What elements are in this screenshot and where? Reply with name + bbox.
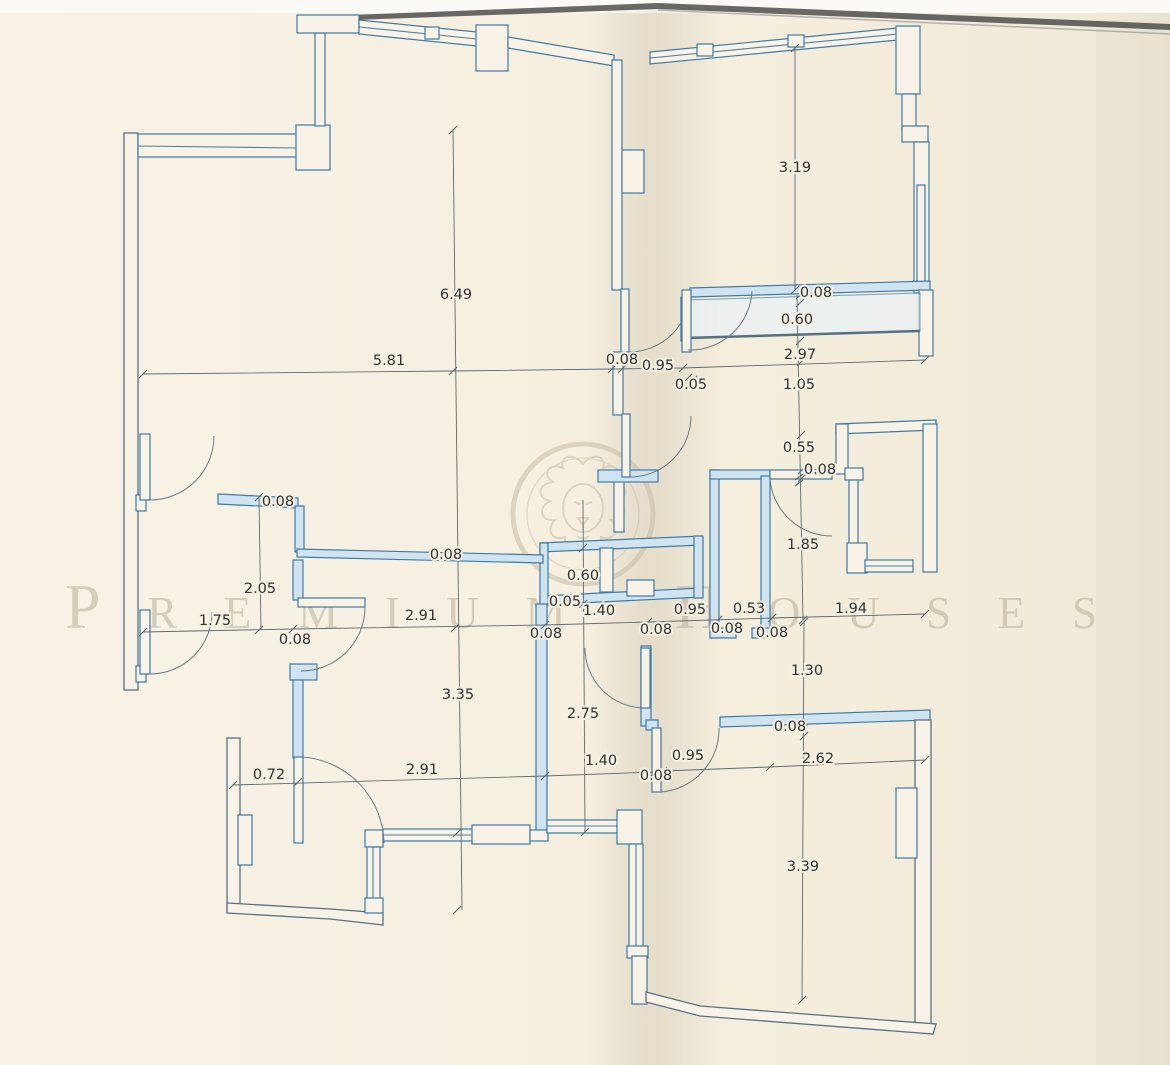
dimension-label: 0.95 (674, 602, 706, 618)
dimension-label: 3.35 (442, 687, 474, 703)
wall (847, 543, 867, 573)
dimension-label: 6.49 (440, 287, 472, 303)
wall (919, 290, 933, 356)
wall (124, 133, 138, 690)
floorplan-canvas: Premium Houses (0, 0, 1170, 1065)
window-band (138, 134, 298, 157)
scanned-floorplan-page: Premium Houses (0, 0, 1170, 1065)
wall (836, 424, 848, 474)
dimension-label: 0.08 (774, 719, 806, 735)
wall (617, 810, 642, 844)
dimension-label: 1.40 (585, 753, 617, 769)
dimension-label: 0.05 (549, 594, 581, 610)
dimension-label: 1.30 (791, 663, 823, 679)
wall (293, 560, 303, 600)
dimension-label: 0.72 (253, 767, 285, 783)
wall (622, 150, 644, 193)
dimension-label: 0.60 (567, 568, 599, 584)
wall (293, 680, 303, 758)
dimension-label: 0.53 (733, 601, 765, 617)
dimension-label: 0.08 (430, 547, 462, 563)
dimension-label: 2.91 (405, 608, 437, 624)
dimension-label: 0.08 (530, 626, 562, 642)
dimension-label: 0.95 (672, 748, 704, 764)
dimension-label: 3.19 (779, 160, 811, 176)
dimension-label: 2.62 (802, 751, 834, 767)
wall (365, 898, 383, 913)
dimension-label: 0.95 (642, 358, 674, 374)
dimension-label: 0.08 (804, 462, 836, 478)
wall (902, 94, 916, 130)
wall (632, 956, 647, 1004)
wall (915, 720, 931, 1026)
closet-divider (600, 548, 613, 592)
wall (923, 424, 937, 572)
wall (238, 815, 252, 865)
wall (290, 664, 317, 680)
dimension-label: 3.39 (787, 859, 819, 875)
wall (295, 506, 304, 552)
wall (612, 60, 622, 290)
window (917, 185, 925, 285)
paper-right-edge-shade (1096, 20, 1170, 1065)
wall (365, 830, 383, 847)
dimension-label: 1.75 (199, 613, 231, 629)
dimension-label: 0.08 (640, 622, 672, 638)
dimension-label: 1.05 (783, 377, 815, 393)
dimension-label: 0.05 (675, 377, 707, 393)
window-mullion (697, 44, 713, 56)
wall (472, 825, 530, 844)
window-band (530, 830, 548, 841)
wall (896, 26, 920, 94)
window (849, 480, 858, 545)
wall (694, 536, 703, 598)
dimension-label: 0.08 (262, 494, 294, 510)
dimension-label: 0.08 (800, 285, 832, 301)
dimension-label: 2.91 (406, 762, 438, 778)
wall (710, 470, 719, 638)
dimension-label: 1.94 (835, 601, 867, 617)
wall (845, 468, 863, 480)
dimension-label: 0.08 (279, 632, 311, 648)
wall (614, 477, 624, 532)
dimension-label: 0.55 (783, 440, 815, 456)
dimension-label: 0.60 (781, 312, 813, 328)
window-mullion (425, 27, 439, 39)
dimension-label: 2.97 (784, 347, 816, 363)
dimension-label: 1.40 (583, 603, 615, 619)
dimension-label: 5.81 (373, 353, 405, 369)
wall (297, 15, 359, 33)
wall (902, 126, 928, 142)
paper-sheet (0, 8, 1170, 1065)
pillar (476, 25, 508, 71)
dimension-label: 1.85 (787, 537, 819, 553)
wall (540, 543, 548, 605)
wall (896, 788, 917, 858)
window-mullion (788, 35, 804, 47)
wall (315, 33, 325, 126)
pillar (296, 125, 330, 170)
dimension-label: 0.08 (756, 625, 788, 641)
dimension-label: 0.08 (640, 768, 672, 784)
dimension-label: 0.08 (711, 621, 743, 637)
dimension-label: 2.75 (567, 706, 599, 722)
dimension-label: 0.08 (606, 352, 638, 368)
dimension-label: 2.05 (244, 581, 276, 597)
closet-box (627, 580, 654, 596)
